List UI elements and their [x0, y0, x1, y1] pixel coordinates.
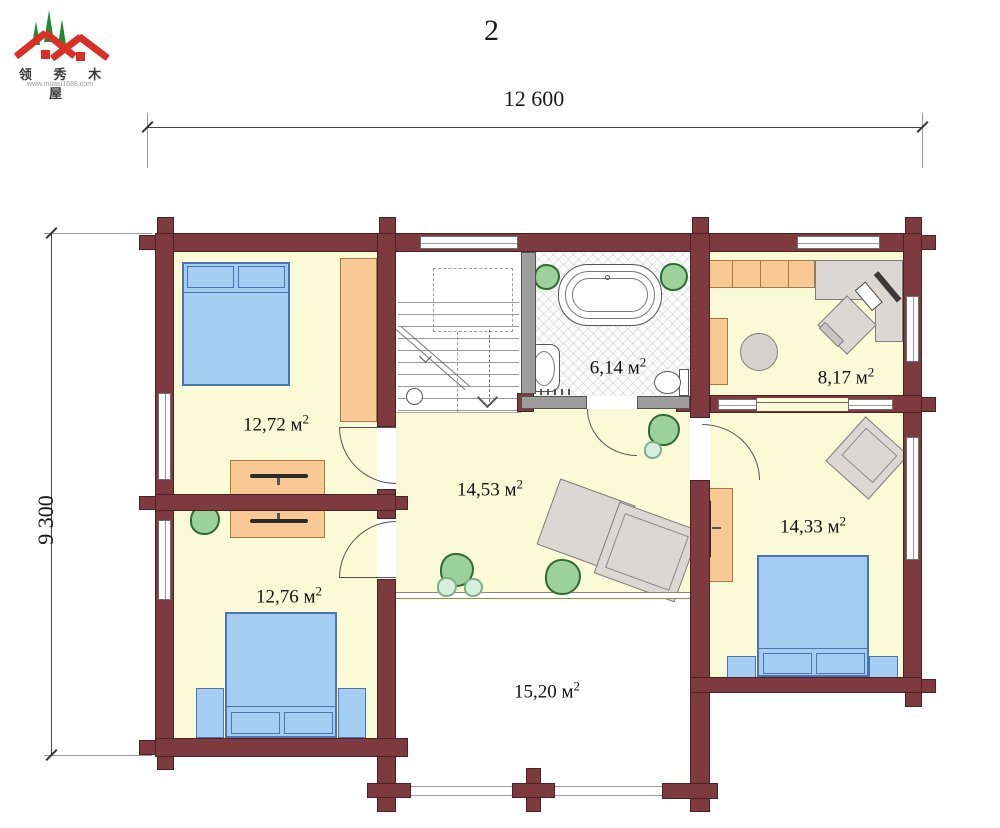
blanket-line: [184, 292, 288, 293]
log-end: [395, 496, 408, 510]
railing-post: [367, 783, 411, 798]
cabinet-row: [703, 260, 815, 288]
extension-line: [922, 113, 923, 168]
window: [797, 236, 880, 249]
partition-bath-south: [521, 396, 587, 409]
pillow: [187, 266, 234, 288]
desk-l-shape: [875, 299, 903, 342]
logo-window-icon: [76, 52, 85, 61]
dimension-line-top: [147, 127, 922, 128]
wardrobe: [340, 258, 377, 422]
log-end: [139, 496, 156, 510]
room-label-bedroom-top-left: 12,72 м2: [243, 411, 309, 436]
window: [158, 520, 171, 600]
window: [158, 393, 171, 480]
dimension-line-left: [51, 233, 52, 755]
room-label-bedroom-right: 14,33 м2: [780, 513, 846, 538]
bathtub: [558, 264, 662, 326]
room-label-bedroom-bottom-left: 12,76 м2: [256, 583, 322, 608]
log-end: [157, 756, 174, 770]
door-leaf: [339, 427, 396, 428]
drain-icon: [605, 275, 610, 280]
wall-east-corridor: [690, 233, 710, 418]
wall-center: [377, 233, 396, 427]
bedside-bench: [869, 656, 898, 678]
pillow: [238, 266, 285, 288]
tv-stand-icon: [277, 478, 280, 485]
window: [906, 296, 919, 362]
window: [906, 437, 919, 560]
pillow: [231, 712, 280, 734]
wall-opening: [757, 398, 848, 411]
log-end: [921, 397, 936, 412]
round-table: [740, 333, 778, 371]
tv: [250, 519, 308, 523]
bedside-bench: [196, 688, 224, 738]
room-label-study: 8,17 м2: [818, 364, 875, 389]
log-end: [692, 217, 709, 234]
log-end: [379, 217, 396, 234]
blanket-line: [759, 648, 867, 649]
log-end: [905, 692, 922, 707]
log-end: [905, 217, 922, 234]
floor-plan-page: 领 秀 木 屋 www.muwu1688.com 2 12 600 9 300: [0, 0, 1000, 828]
toilet: [654, 371, 681, 394]
room-label-hall: 14,53 м2: [457, 476, 523, 501]
log-end: [921, 679, 936, 693]
company-logo: 领 秀 木 屋 www.muwu1688.com: [4, 4, 116, 96]
log-end: [157, 217, 174, 234]
railing-post: [662, 783, 718, 799]
blanket-line: [227, 706, 335, 707]
pillow: [763, 653, 812, 674]
pillow: [816, 653, 865, 674]
window: [718, 399, 757, 410]
bedside-bench: [338, 688, 366, 738]
partition-stair-bath: [521, 252, 536, 394]
dimension-height: 9 300: [33, 495, 59, 545]
log-end: [921, 235, 936, 250]
wall-bottom-right: [690, 677, 922, 693]
room-label-balcony: 15,20 м2: [514, 678, 580, 703]
page-title: 2: [484, 14, 499, 48]
window: [420, 236, 518, 249]
wall-center: [377, 579, 396, 812]
extension-line: [44, 233, 152, 234]
logo-url: www.muwu1688.com: [4, 81, 116, 88]
logo-window-icon: [41, 50, 50, 59]
pillow: [284, 712, 333, 734]
log-end: [139, 235, 156, 250]
log-end: [139, 740, 156, 755]
stair-start-marker: [406, 388, 423, 405]
extension-line: [44, 755, 152, 756]
wall-mid-left: [155, 494, 396, 511]
wall-bottom-left: [155, 738, 408, 757]
window: [848, 399, 893, 410]
tv-stand-icon: [712, 527, 721, 529]
wall-east-corridor: [690, 480, 710, 812]
door-leaf: [339, 577, 396, 578]
railing-post: [512, 783, 555, 798]
partition-bath-south: [637, 396, 690, 409]
bedside-bench: [727, 656, 756, 678]
room-label-bathroom: 6,14 м2: [590, 354, 647, 379]
extension-line: [147, 113, 148, 168]
tv-stand-icon: [277, 513, 280, 519]
dimension-width: 12 600: [504, 86, 565, 112]
